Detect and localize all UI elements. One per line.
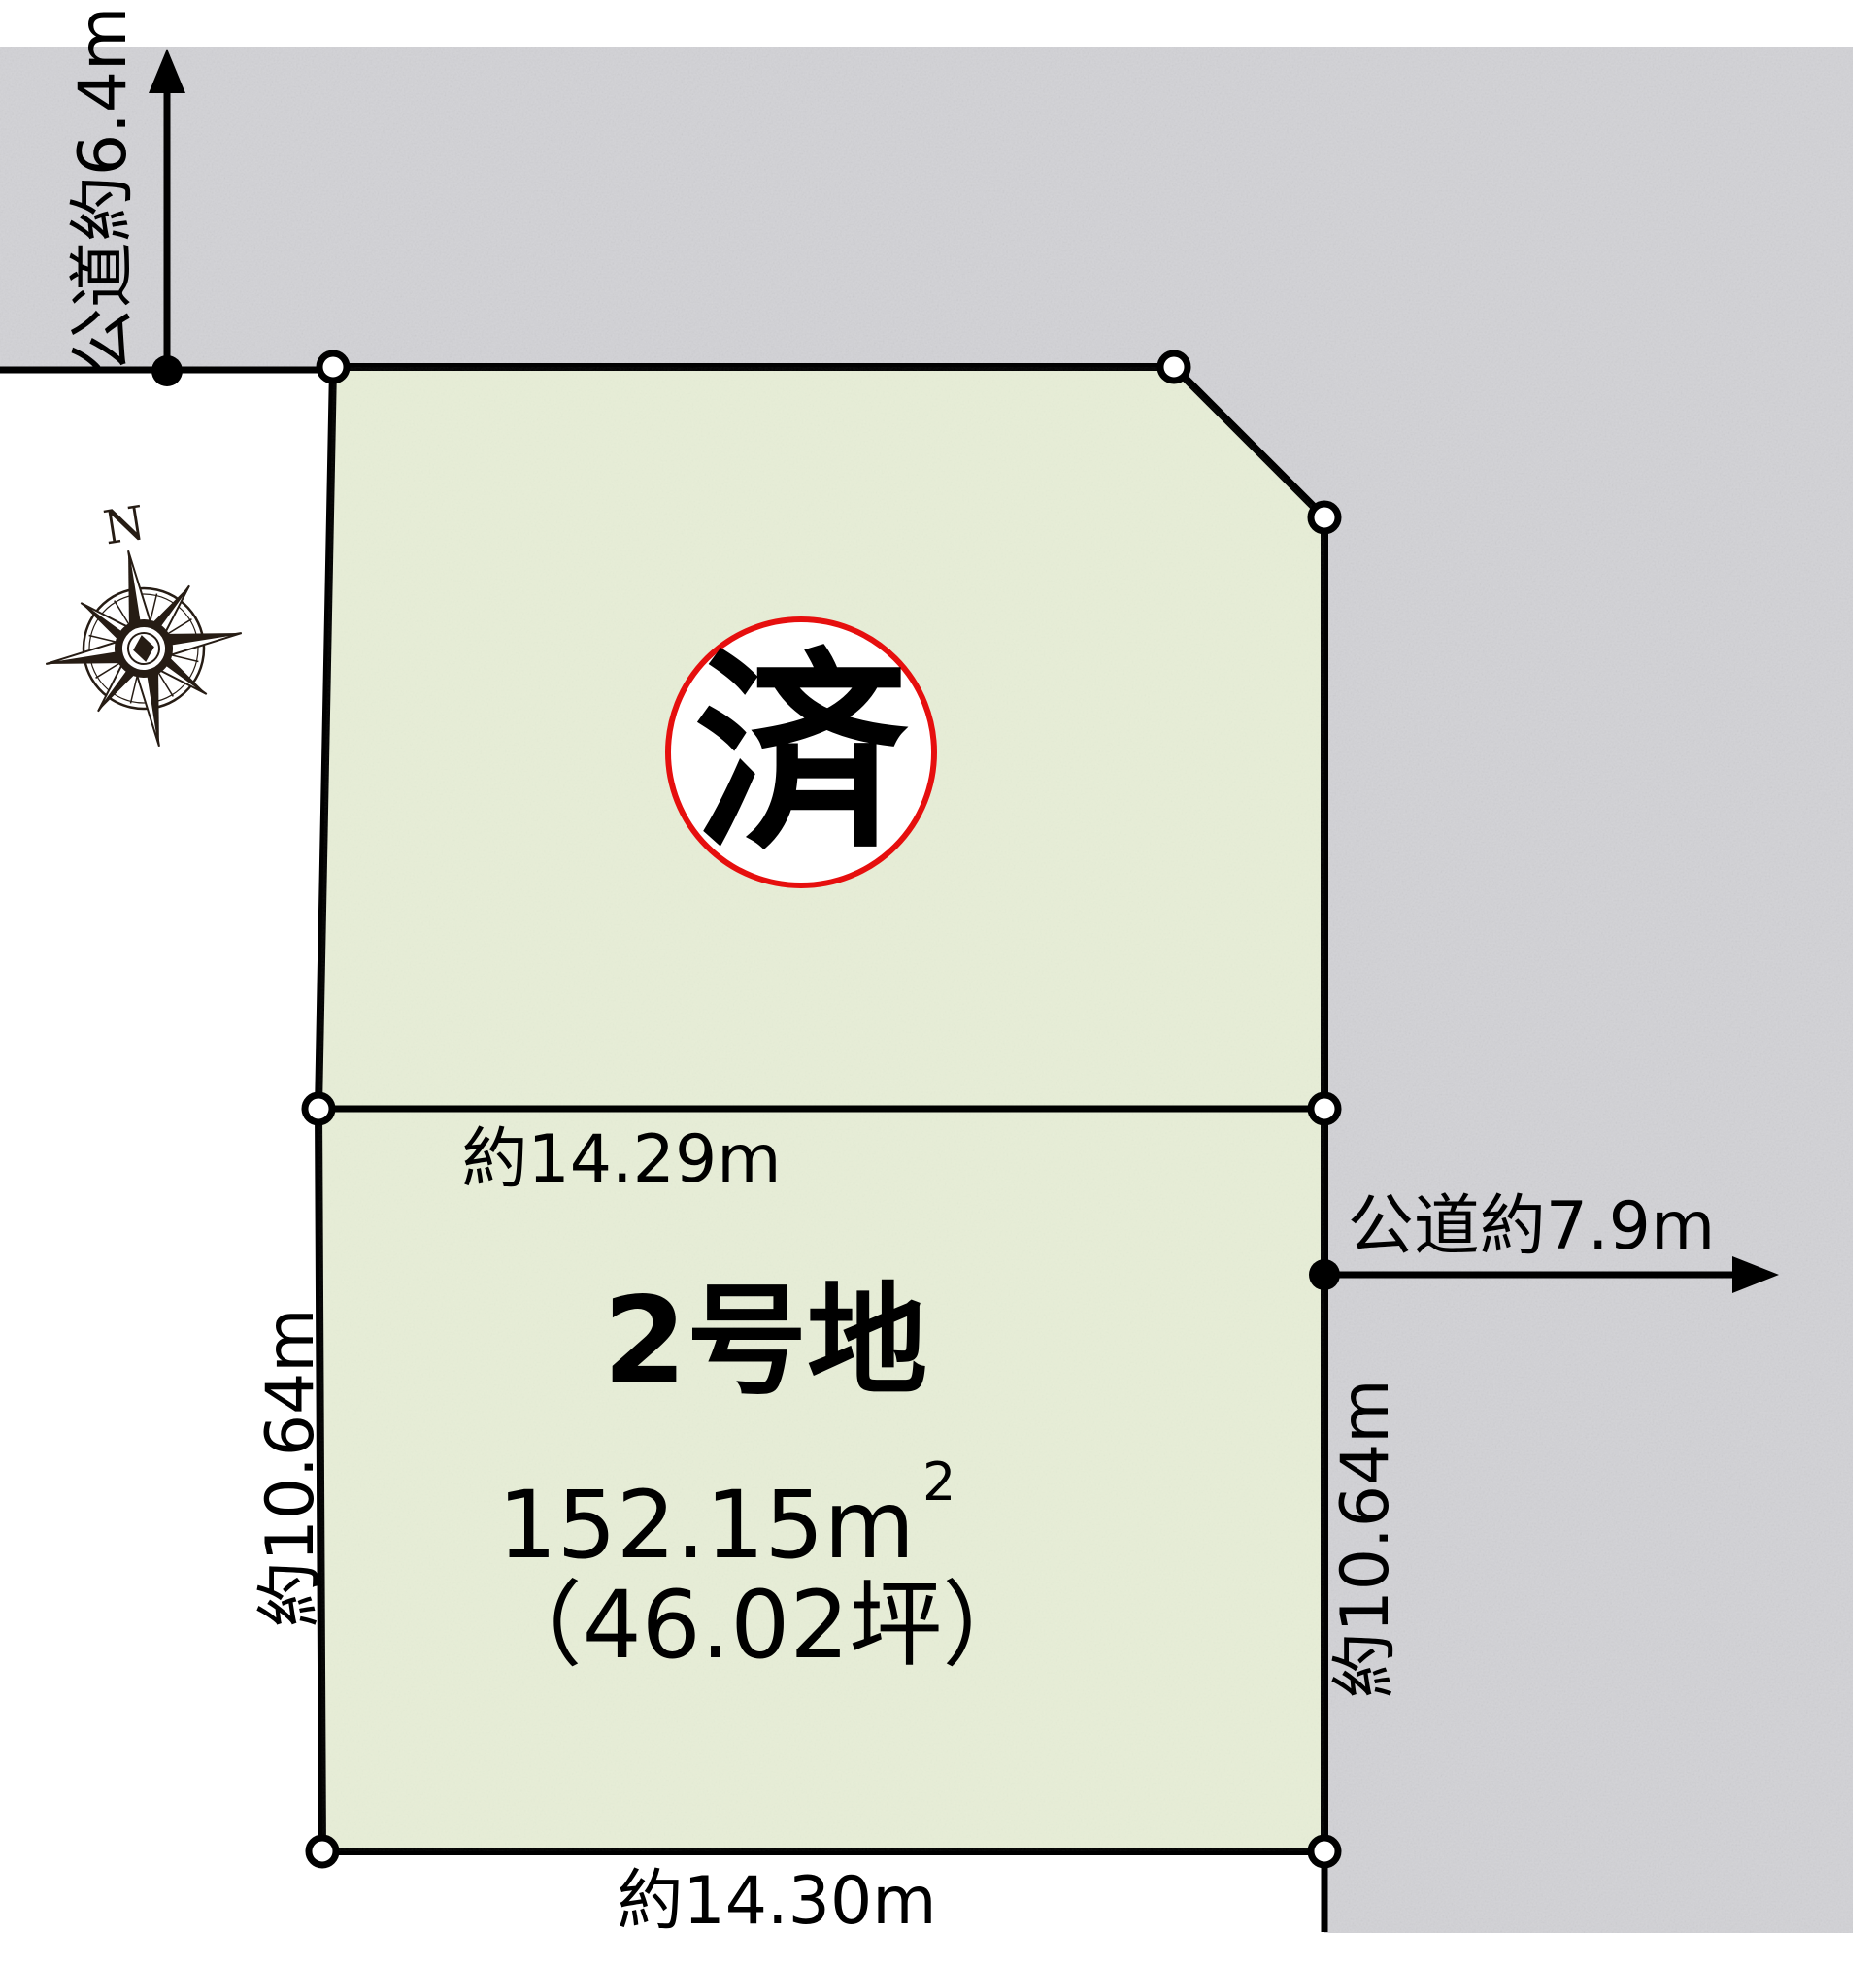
sold-stamp-text: 済 [694,630,909,879]
dimension-right: 約10.64m [1327,1380,1404,1699]
arrow-origin-dot [151,355,183,386]
compass-north-label: N [100,496,149,556]
vertex-marker [1311,1095,1338,1122]
north-road-label: 公道約6.4m [65,7,142,374]
vertex-marker [319,353,347,381]
lot-name: 2号地 [603,1272,927,1412]
lot-area-m2-superscript: 2 [922,1451,955,1513]
east-road-label: 公道約7.9m [1348,1188,1715,1265]
vertex-marker [305,1095,332,1122]
sold-stamp: 済 [668,619,934,885]
lot-area-m2: 152.15m [498,1471,915,1580]
land-plot-diagram: 公道約6.4m 公道約7.9m 約14.29m 約14.30m 約10.64m … [0,0,1876,1965]
vertex-marker [1311,504,1338,531]
vertex-marker [1160,353,1188,381]
vertex-marker [1311,1838,1338,1865]
dimension-top: 約14.29m [462,1121,782,1198]
vertex-marker [309,1838,336,1865]
dimension-bottom: 約14.30m [618,1863,937,1940]
dimension-left: 約10.64m [252,1309,329,1628]
lot-area-tsubo: （46.02坪） [489,1571,1036,1680]
compass: N [22,483,257,762]
arrow-origin-dot [1309,1259,1340,1290]
